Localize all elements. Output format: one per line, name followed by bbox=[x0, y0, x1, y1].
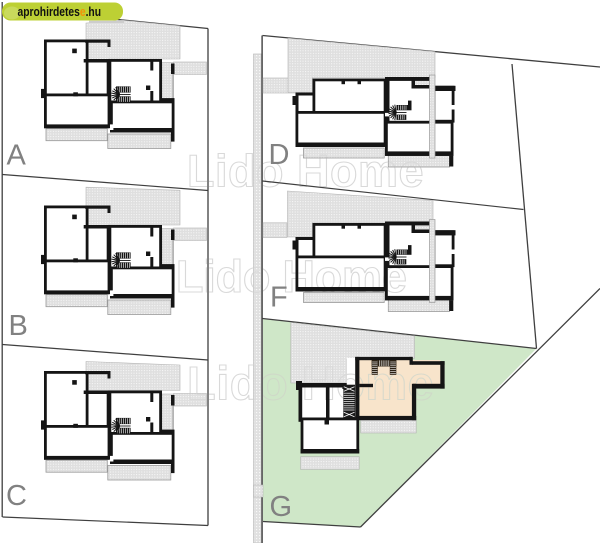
svg-text:G: G bbox=[270, 491, 293, 523]
svg-text:B: B bbox=[9, 310, 28, 342]
svg-text:A: A bbox=[7, 140, 27, 172]
svg-text:Lido Home: Lido Home bbox=[187, 357, 434, 410]
svg-text:Lido Home: Lido Home bbox=[187, 146, 424, 197]
svg-text:C: C bbox=[6, 480, 27, 512]
svg-text:Lido Home: Lido Home bbox=[176, 251, 407, 302]
svg-text:aprohirdetese.hu: aprohirdetese.hu bbox=[18, 4, 102, 19]
